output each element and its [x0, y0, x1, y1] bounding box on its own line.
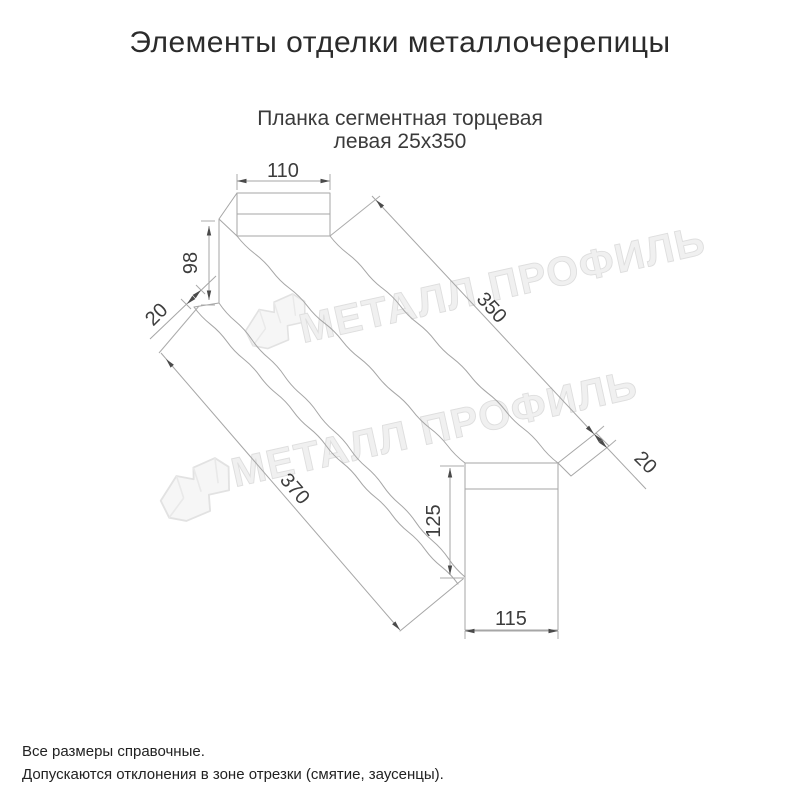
- dim-label-left-hem: 20: [141, 299, 172, 330]
- page: Элементы отделки металлочерепицы Планка …: [0, 0, 800, 800]
- dim-label-top-width: 110: [267, 160, 299, 182]
- watermark-text: МЕТАЛЛ ПРОФИЛЬ: [295, 217, 710, 352]
- footnotes: Все размеры справочные. Допускаются откл…: [22, 740, 444, 786]
- watermark-lower: МЕТАЛЛ ПРОФИЛЬ: [154, 361, 642, 525]
- technical-drawing: МЕТАЛЛ ПРОФИЛЬ МЕТАЛЛ ПРОФИЛЬ: [0, 0, 800, 800]
- end-cap-rect: [465, 463, 558, 630]
- watermark-upper: МЕТАЛЛ ПРОФИЛЬ: [240, 217, 710, 352]
- dim-label-end-height: 125: [423, 504, 445, 537]
- dim-label-left-height: 98: [180, 252, 202, 274]
- strip-end-cut-edge: [400, 579, 463, 631]
- metal-profil-logo-icon: [154, 456, 238, 526]
- dim-label-right-hem: 20: [630, 447, 661, 478]
- dim-label-end-width: 115: [495, 608, 527, 630]
- footnote-line2: Допускаются отклонения в зоне отрезки (с…: [22, 763, 444, 786]
- footnote-line1: Все размеры справочные.: [22, 740, 444, 763]
